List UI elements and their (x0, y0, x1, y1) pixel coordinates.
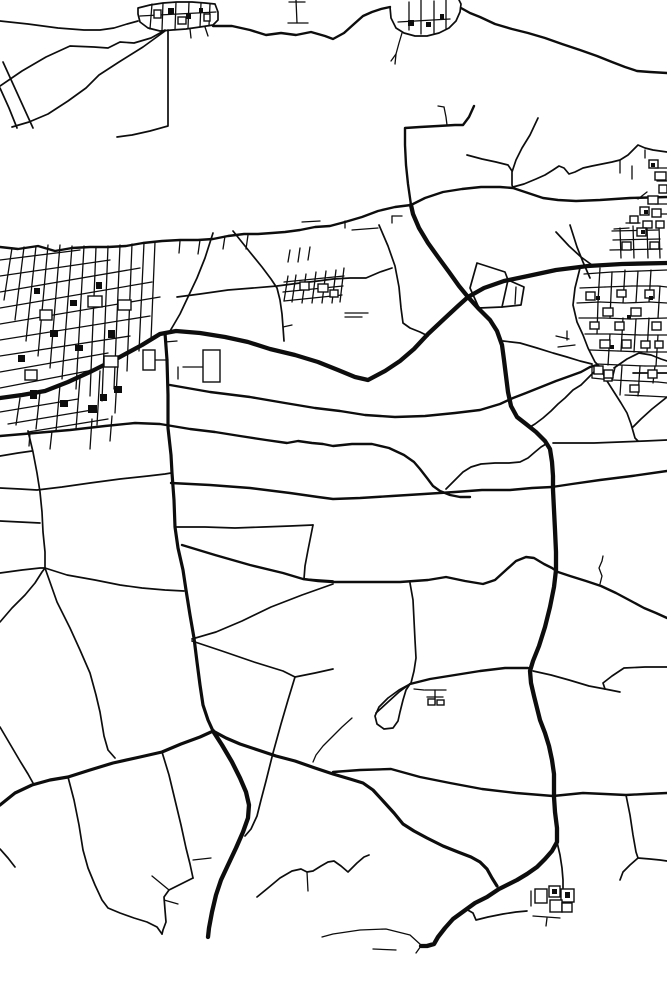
road-segment (340, 268, 344, 302)
road-segment (333, 769, 667, 796)
road-segment (421, 297, 557, 946)
road-segment (390, 0, 461, 36)
road-segment (503, 341, 592, 364)
building-block (88, 296, 102, 307)
road-segment (151, 242, 155, 340)
road-segment (164, 900, 178, 904)
road-segment (152, 876, 169, 890)
building-block (168, 8, 174, 14)
road-segment (162, 878, 193, 934)
road-segment (0, 451, 32, 456)
road-segment (414, 689, 424, 690)
road-segment (76, 246, 84, 389)
building-block (565, 892, 570, 898)
road-segment (612, 380, 635, 381)
road-segment (190, 29, 191, 38)
road-segment (12, 31, 165, 127)
road-segment (446, 444, 546, 489)
road-segment (307, 872, 308, 891)
road-segment (68, 777, 162, 934)
road-segment (0, 521, 40, 523)
road-segment (467, 155, 512, 171)
road-segment (658, 382, 667, 383)
road-segment (0, 30, 165, 86)
road-segment (296, 0, 297, 23)
building-block (50, 330, 58, 337)
building-block (199, 8, 203, 13)
building-block (631, 308, 641, 316)
road-segment (625, 302, 650, 303)
building-block (186, 14, 191, 19)
road-segment (298, 248, 300, 262)
road-segment (16, 398, 20, 425)
road-segment (193, 858, 211, 860)
building-block (643, 221, 652, 228)
building-block (622, 340, 631, 348)
road-segment (444, 107, 447, 125)
road-segment (117, 30, 168, 137)
building-block (552, 889, 557, 894)
road-segment (600, 302, 625, 303)
road-segment (647, 227, 648, 258)
road-segment (50, 245, 60, 368)
road-segment (313, 718, 352, 762)
road-segment (292, 275, 296, 302)
road-segment (604, 318, 630, 319)
road-segment (626, 795, 638, 858)
building-block (108, 330, 115, 338)
road-segment (580, 287, 605, 288)
building-block (114, 386, 122, 393)
road-segment (656, 335, 658, 366)
road-segment (373, 949, 396, 950)
road-segment (182, 545, 667, 618)
building-block (604, 370, 613, 378)
road-segment (620, 228, 621, 258)
road-segment (175, 525, 313, 528)
road-segment (0, 88, 17, 128)
road-segment (640, 270, 667, 271)
road-segment (533, 671, 620, 692)
building-block (440, 14, 444, 19)
road-segment (410, 583, 416, 683)
building-block (75, 345, 83, 351)
road-segment (638, 858, 667, 861)
road-segment (599, 556, 603, 584)
road-segment (90, 419, 92, 449)
road-segment (625, 395, 648, 396)
map-canvas (0, 0, 667, 1000)
road-segment (648, 396, 667, 397)
building-block (154, 10, 161, 18)
road-segment (50, 431, 52, 449)
building-block (652, 209, 661, 217)
building-block (96, 282, 102, 289)
road-segment (208, 731, 249, 937)
road-segment (175, 2, 176, 30)
road-segment (405, 106, 474, 205)
road-segment (411, 205, 468, 297)
building-block (644, 210, 648, 214)
road-segment (546, 918, 547, 926)
road-segment (302, 221, 320, 222)
map-viewport (0, 0, 667, 1000)
building-block (610, 345, 614, 349)
road-segment (633, 397, 667, 427)
building-block (408, 20, 414, 26)
road-segment (618, 351, 645, 352)
building-block (617, 290, 626, 297)
road-segment (0, 568, 45, 573)
road-segment (192, 641, 333, 677)
road-segment (608, 334, 610, 365)
building-block (562, 903, 572, 912)
building-block (25, 370, 37, 380)
road-segment (0, 568, 45, 622)
building-block (655, 341, 663, 348)
road-segment (198, 240, 200, 254)
road-segment (558, 345, 575, 347)
building-block (60, 400, 68, 407)
road-segment (162, 752, 193, 878)
road-segment (56, 385, 60, 431)
building-block (652, 322, 661, 330)
road-segment (411, 187, 667, 205)
building-block (603, 308, 613, 316)
building-block (650, 242, 659, 249)
road-segment (603, 667, 667, 689)
building-block (648, 370, 657, 378)
road-segment (179, 241, 180, 253)
road-segment (438, 106, 444, 107)
building-block (30, 390, 37, 399)
road-segment (398, 19, 450, 22)
building-block (659, 185, 667, 193)
building-block (40, 310, 52, 320)
building-block (88, 405, 97, 413)
building-block (437, 700, 444, 705)
road-segment (110, 416, 112, 441)
road-segment (395, 33, 402, 64)
building-block (596, 296, 600, 300)
building-block (627, 315, 631, 319)
building-block (630, 216, 638, 223)
building-block (34, 288, 40, 294)
road-segment (257, 855, 369, 897)
road-segment (288, 250, 290, 262)
road-segment (0, 260, 110, 276)
road-segment (171, 471, 667, 499)
road-segment (612, 230, 658, 231)
road-segment (3, 62, 33, 128)
building-block (649, 296, 653, 300)
building-block (535, 889, 547, 903)
road-segment (162, 3, 163, 30)
building-block (318, 284, 328, 292)
building-block (641, 341, 650, 348)
road-segment (283, 325, 292, 327)
roads-lanes-group (0, 0, 667, 953)
road-segment (461, 8, 667, 73)
building-block (622, 242, 631, 250)
road-segment (205, 27, 208, 36)
road-segment (200, 3, 201, 27)
building-block (641, 230, 645, 234)
road-segment (620, 858, 638, 880)
road-segment (284, 276, 288, 301)
building-block (600, 340, 610, 348)
road-segment (45, 568, 184, 591)
building-block (655, 172, 666, 180)
building-block (426, 22, 431, 27)
building-block (178, 17, 186, 24)
road-segment (634, 319, 636, 352)
building-block (300, 282, 309, 290)
road-segment (612, 271, 640, 272)
road-segment (97, 371, 100, 425)
road-segment (192, 584, 333, 639)
road-segment (0, 21, 138, 30)
road-segment (8, 410, 92, 424)
road-segment (308, 247, 310, 260)
road-segment (170, 233, 213, 331)
road-segment (139, 243, 144, 351)
building-block (615, 322, 624, 330)
building-block (586, 292, 595, 300)
road-segment (605, 286, 632, 287)
road-segment (304, 525, 313, 579)
roads-medium-group (0, 7, 667, 796)
building-block (70, 300, 77, 306)
road-segment (379, 225, 428, 336)
building-block (18, 355, 25, 362)
building-block (651, 163, 655, 167)
building-block (118, 300, 131, 310)
road-segment (375, 684, 410, 729)
road-segment (512, 118, 538, 188)
road-segment (0, 849, 15, 867)
road-segment (614, 228, 629, 229)
road-segment (165, 333, 213, 731)
building-block (428, 699, 435, 705)
road-segment (45, 568, 115, 758)
road-segment (0, 205, 411, 251)
road-segment (557, 842, 563, 888)
building-block (143, 350, 155, 370)
building-block (100, 394, 107, 401)
building-block (648, 196, 658, 204)
road-segment (322, 929, 421, 945)
road-segment (513, 145, 667, 187)
road-segment (0, 473, 171, 490)
road-segment (150, 4, 152, 29)
road-segment (376, 684, 410, 713)
building-block (630, 385, 639, 392)
road-segment (612, 334, 640, 335)
building-block (204, 14, 210, 21)
road-segment (590, 350, 618, 351)
road-segment (466, 909, 527, 920)
building-block (656, 221, 664, 228)
building-block (590, 322, 599, 329)
road-segment (553, 440, 667, 443)
road-segment (577, 302, 600, 303)
building-block (330, 290, 338, 297)
road-segment (620, 365, 645, 366)
road-segment (515, 287, 516, 304)
road-segment (0, 727, 33, 783)
building-block (594, 366, 603, 374)
road-segment (352, 228, 378, 230)
road-segment (410, 668, 531, 684)
building-block (550, 900, 562, 912)
building-block (104, 356, 118, 367)
building-block (203, 350, 220, 382)
road-segment (245, 677, 295, 836)
